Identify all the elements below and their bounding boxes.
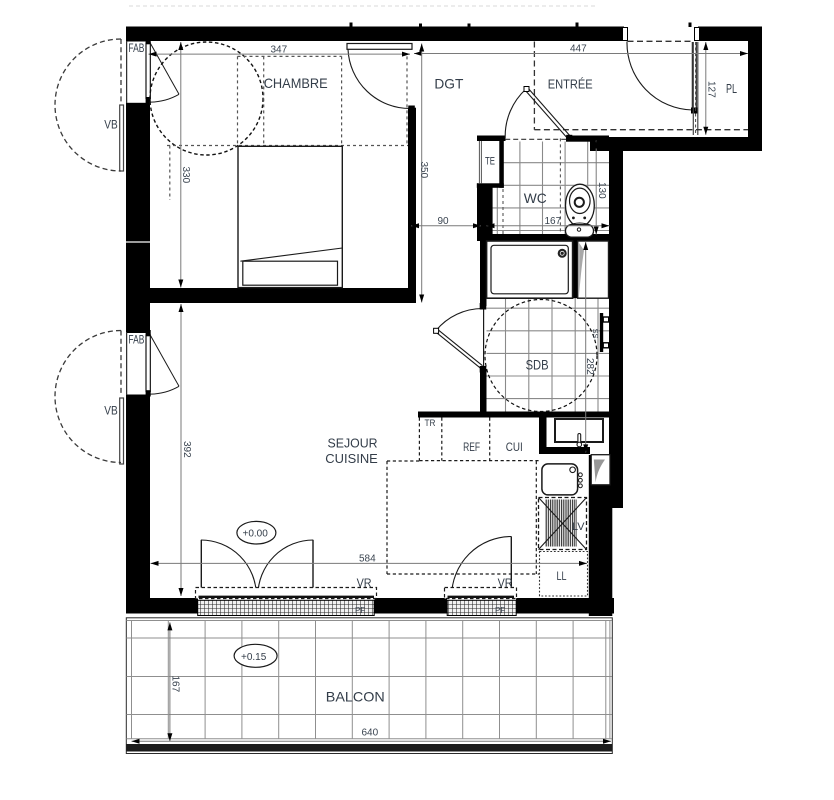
svg-text:640: 640 xyxy=(362,728,379,739)
svg-text:BALCON: BALCON xyxy=(326,689,385,705)
svg-text:FAB: FAB xyxy=(128,334,144,346)
svg-text:347: 347 xyxy=(271,44,288,55)
svg-text:FAB: FAB xyxy=(128,43,144,55)
svg-text:350: 350 xyxy=(418,162,429,179)
svg-text:584: 584 xyxy=(359,554,376,565)
svg-text:TR: TR xyxy=(425,418,436,428)
svg-text:330: 330 xyxy=(180,167,191,184)
svg-text:VR: VR xyxy=(357,578,372,590)
svg-text:167: 167 xyxy=(170,676,181,693)
svg-text:167: 167 xyxy=(545,216,562,227)
svg-text:VR: VR xyxy=(498,578,513,590)
svg-text:127: 127 xyxy=(706,81,717,98)
svg-text:282: 282 xyxy=(584,358,595,375)
svg-text:90: 90 xyxy=(438,216,450,227)
svg-text:CUI: CUI xyxy=(506,440,523,454)
svg-text:DGT: DGT xyxy=(434,75,463,91)
svg-text:PL: PL xyxy=(726,81,737,96)
svg-text:ENTRÉE: ENTRÉE xyxy=(548,76,593,91)
svg-text:447: 447 xyxy=(570,44,587,55)
svg-text:PF: PF xyxy=(495,606,505,615)
svg-text:REF: REF xyxy=(463,440,480,454)
svg-text:CHAMBRE: CHAMBRE xyxy=(264,75,328,91)
svg-text:392: 392 xyxy=(181,441,192,458)
svg-text:SEJOUR: SEJOUR xyxy=(328,435,378,450)
svg-text:TE: TE xyxy=(485,156,495,168)
svg-text:CUISINE: CUISINE xyxy=(325,451,378,466)
svg-text:SS: SS xyxy=(591,329,600,339)
svg-text:+0.00: +0.00 xyxy=(243,529,269,540)
svg-text:WC: WC xyxy=(524,190,547,206)
svg-text:SDB: SDB xyxy=(526,356,549,372)
svg-text:PF: PF xyxy=(355,606,365,615)
svg-text:130: 130 xyxy=(596,182,607,199)
svg-text:VB: VB xyxy=(104,406,118,418)
svg-text:LV: LV xyxy=(572,521,585,533)
svg-text:+0.15: +0.15 xyxy=(241,652,267,663)
svg-text:LL: LL xyxy=(557,571,567,583)
svg-text:VB: VB xyxy=(104,119,118,131)
